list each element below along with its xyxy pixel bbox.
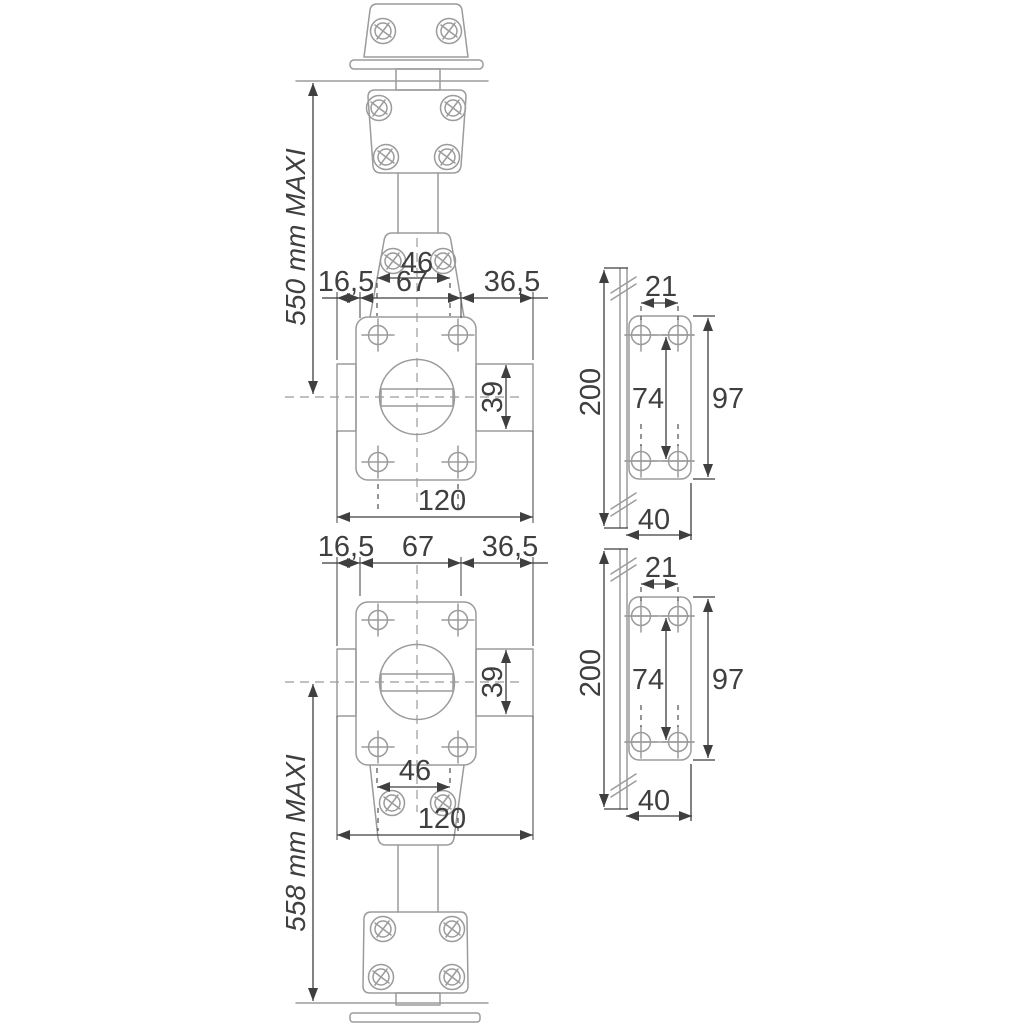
dim-top-offset-right: 36,5 — [484, 266, 540, 298]
technical-drawing-page: 200 21 74 97 40 — [0, 0, 1024, 1024]
top-guide-bracket — [350, 4, 483, 69]
top-lock-dimensions — [313, 83, 548, 523]
dim-bottom-max-height: 558 mm MAXI — [280, 754, 311, 932]
dim-top-body-width: 67 — [396, 266, 428, 298]
bottom-lock-assembly: 558 mm MAXI 16,5 67 36,5 39 46 120 — [280, 531, 548, 1022]
dim-top-offset-left: 16,5 — [318, 266, 374, 298]
dim-top-total-width: 120 — [418, 485, 466, 517]
dim-bottom-knob-height: 39 — [477, 666, 509, 698]
connecting-rod-bottom — [398, 845, 438, 912]
dim-top-max-height: 550 mm MAXI — [280, 148, 311, 326]
dim-bottom-total-width: 120 — [418, 803, 466, 835]
dim-bottom-body-width: 67 — [402, 531, 434, 563]
dim-bottom-offset-right: 36,5 — [482, 531, 538, 563]
top-lock-assembly: 550 mm MAXI 46 16,5 67 36,5 39 120 — [280, 4, 548, 523]
connecting-rod-top — [398, 173, 438, 233]
bottom-mount-bracket — [363, 912, 468, 1005]
strike-plate-top — [575, 268, 744, 540]
strike-plate-bottom — [575, 549, 744, 821]
dim-top-knob-height: 39 — [477, 381, 509, 413]
strike-plates — [575, 268, 744, 821]
dim-bottom-offset-left: 16,5 — [318, 531, 374, 563]
floor-plate — [350, 1013, 480, 1022]
lock-dimension-diagram: 200 21 74 97 40 — [0, 0, 1024, 1024]
dim-bottom-bracket-width: 46 — [399, 755, 431, 787]
top-mount-bracket — [367, 69, 467, 173]
